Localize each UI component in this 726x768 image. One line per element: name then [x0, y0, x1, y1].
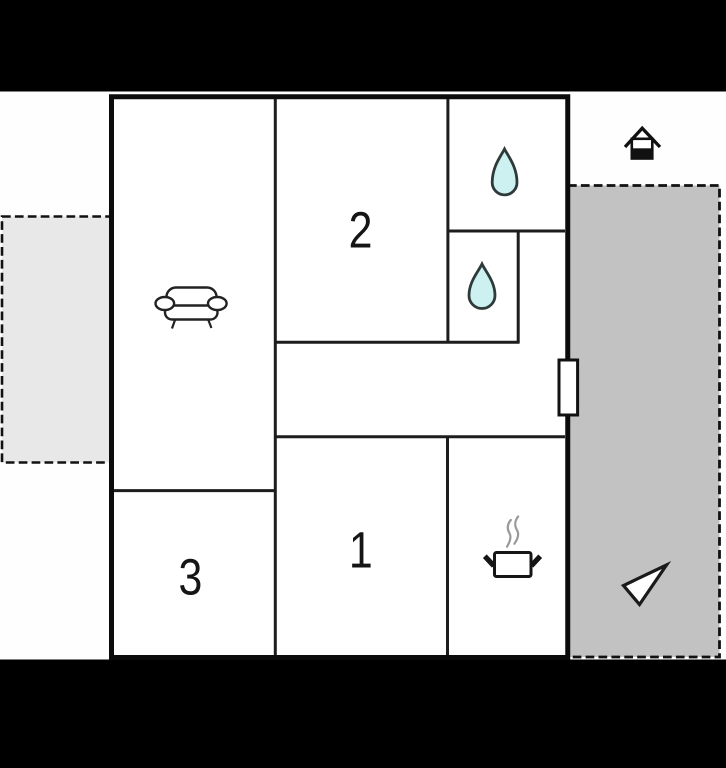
- svg-text:3: 3: [178, 548, 202, 605]
- svg-text:1: 1: [349, 521, 373, 578]
- svg-text:2: 2: [349, 201, 373, 258]
